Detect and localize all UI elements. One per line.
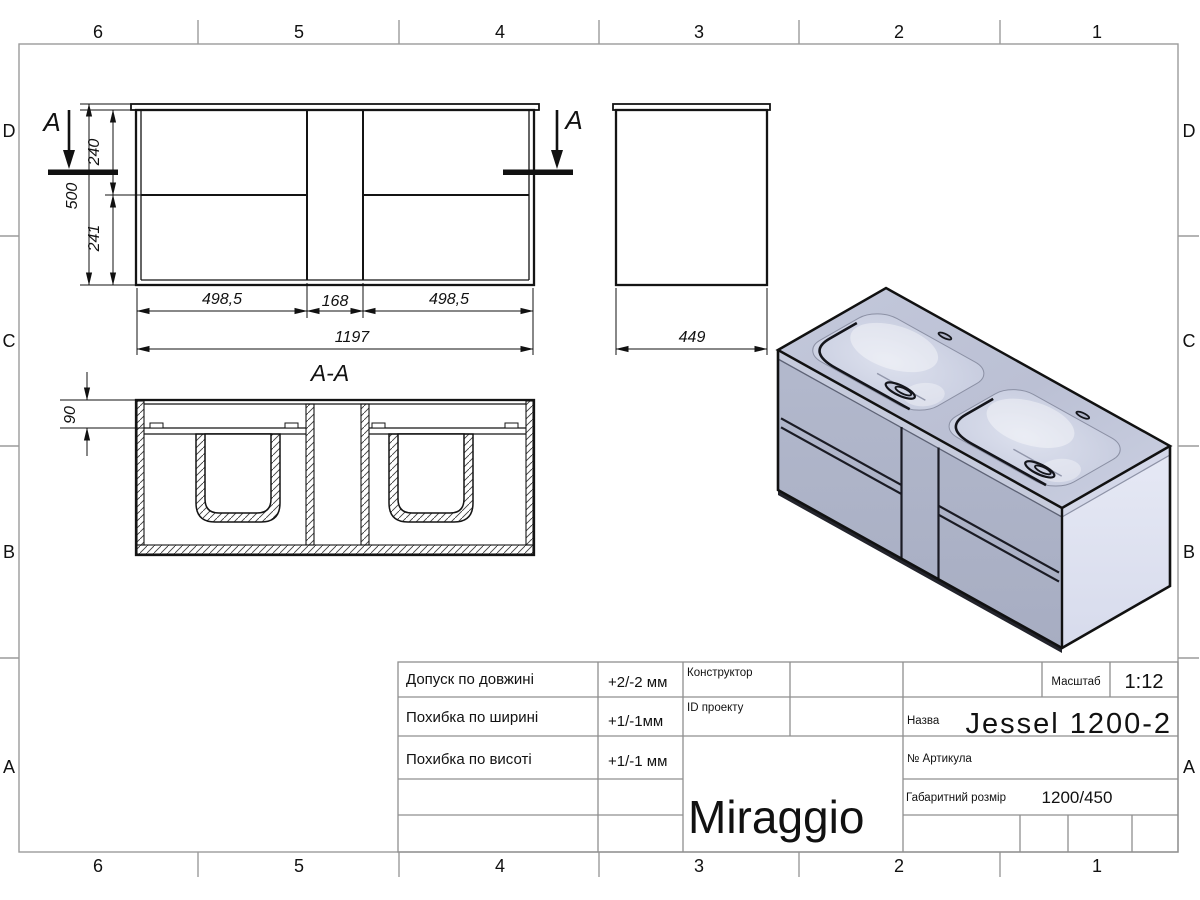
zone-col-label: 6	[93, 22, 103, 42]
tolerance-label: Допуск по довжині	[406, 671, 534, 688]
brand-logo: Miraggio	[688, 791, 864, 843]
zone-row-label: A	[3, 757, 15, 777]
zone-col-label: 2	[894, 22, 904, 42]
product-name: Jessel 1200-2	[965, 708, 1172, 740]
zone-col-label: 6	[93, 856, 103, 876]
zone-col-label: 2	[894, 856, 904, 876]
drawing-sheet: 6 5 4 3 2 1 6 5 4 3 2 1 D C B A D C B A	[0, 0, 1200, 900]
dim-width-center: 168	[322, 293, 349, 310]
size-value: 1200/450	[1042, 788, 1113, 807]
size-label: Габаритний розмір	[906, 792, 1006, 804]
tolerance-value: +1/-1мм	[608, 713, 663, 730]
tolerance-value: +2/-2 мм	[608, 674, 667, 691]
scale-label: Масштаб	[1051, 676, 1101, 688]
zone-col-label: 3	[694, 22, 704, 42]
dim-width-right: 498,5	[429, 291, 469, 308]
dim-height-top: 240	[86, 139, 103, 167]
zone-col-label: 1	[1092, 22, 1102, 42]
zone-row-label: B	[1183, 542, 1195, 562]
dim-height-bottom: 241	[86, 225, 103, 253]
section-marker-label: A	[41, 107, 60, 137]
tolerance-value: +1/-1 мм	[608, 753, 667, 770]
scale-value: 1:12	[1125, 671, 1164, 693]
zone-row-label: D	[3, 121, 16, 141]
zone-col-label: 5	[294, 856, 304, 876]
dim-counter-height: 90	[62, 406, 79, 424]
dim-width-left: 498,5	[202, 291, 242, 308]
zone-col-label: 4	[495, 22, 505, 42]
designer-label: Конструктор	[687, 667, 753, 679]
zone-col-label: 1	[1092, 856, 1102, 876]
zone-row-label: D	[1183, 121, 1196, 141]
project-id-label: ID проекту	[687, 702, 744, 714]
basin-tub-left	[196, 434, 280, 522]
dim-height-total: 500	[64, 183, 81, 210]
tolerance-label: Похибка по висоті	[406, 751, 532, 768]
basin-tub-right	[389, 434, 473, 522]
dim-depth: 449	[679, 329, 706, 346]
zone-row-label: C	[3, 331, 16, 351]
tolerance-label: Похибка по ширині	[406, 709, 538, 726]
zone-row-label: A	[1183, 757, 1195, 777]
zone-col-label: 4	[495, 856, 505, 876]
zone-row-label: B	[3, 542, 15, 562]
section-marker-label: A	[563, 105, 582, 135]
article-label: № Артикула	[907, 753, 972, 765]
zone-row-label: C	[1183, 331, 1196, 351]
zone-col-label: 3	[694, 856, 704, 876]
name-label: Назва	[907, 715, 940, 727]
zone-col-label: 5	[294, 22, 304, 42]
dim-width-total: 1197	[335, 329, 371, 346]
section-title: A-A	[309, 360, 349, 386]
